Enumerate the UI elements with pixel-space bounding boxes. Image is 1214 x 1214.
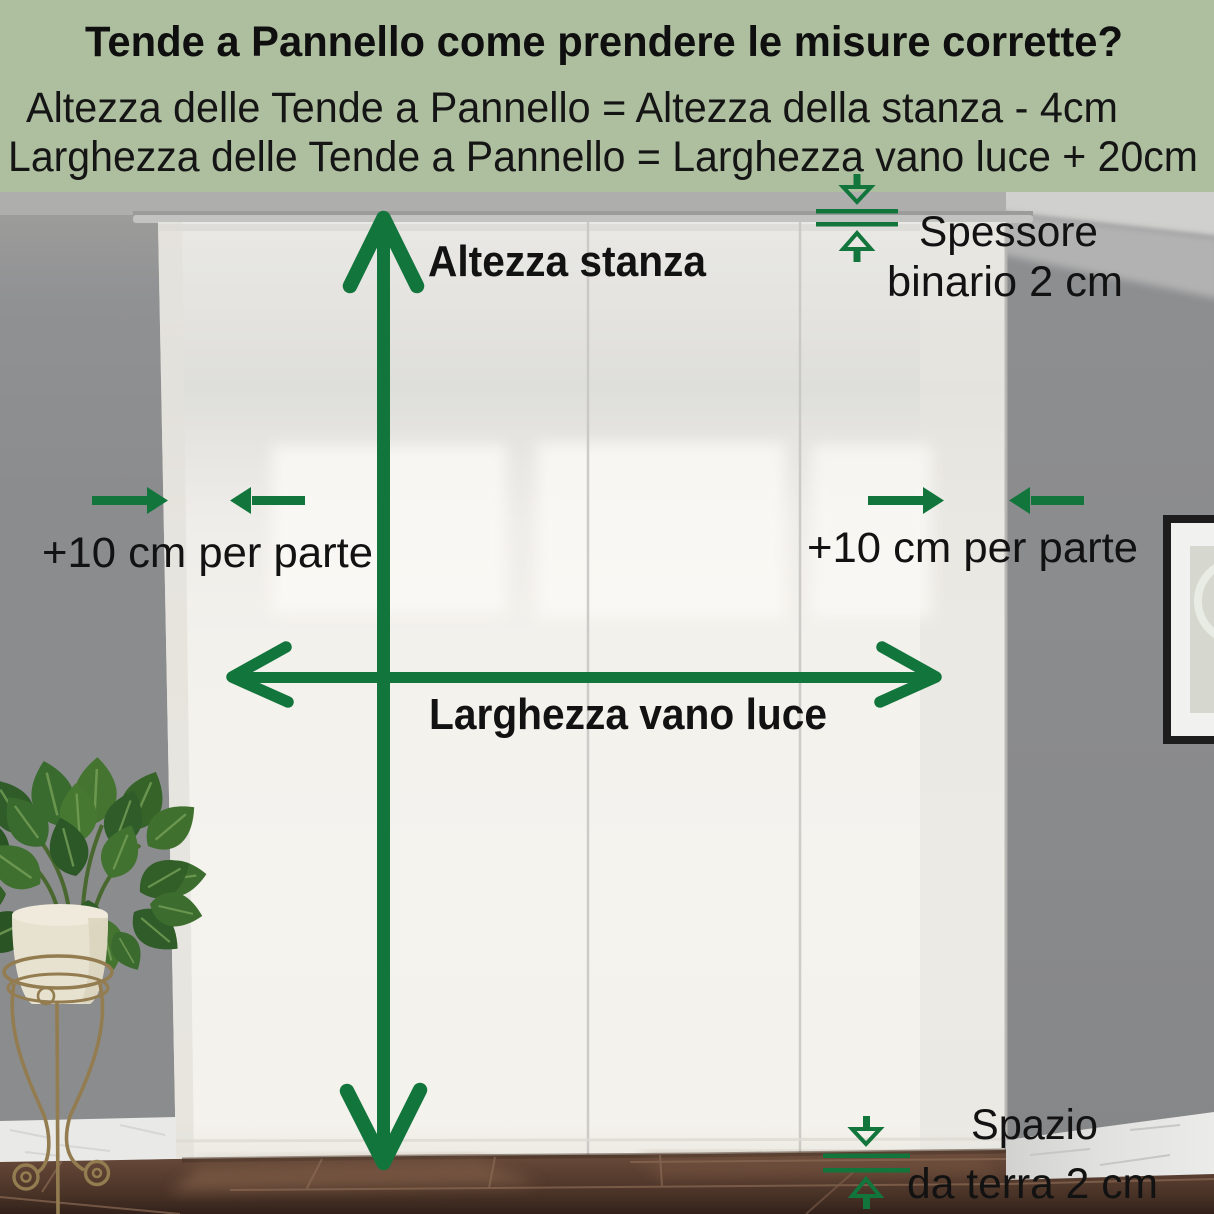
- svg-text:Altezza delle Tende a Pannello: Altezza delle Tende a Pannello = Altezza…: [26, 84, 1118, 132]
- svg-text:Tende a Pannello come prendere: Tende a Pannello come prendere le misure…: [85, 18, 1123, 66]
- svg-text:Spessore: Spessore: [919, 208, 1098, 256]
- svg-text:Spazio: Spazio: [971, 1101, 1098, 1149]
- svg-text:+10 cm per parte: +10 cm per parte: [42, 529, 373, 577]
- svg-text:binario 2 cm: binario 2 cm: [887, 258, 1123, 306]
- svg-text:Altezza stanza: Altezza stanza: [428, 237, 706, 286]
- svg-text:+10 cm per parte: +10 cm per parte: [807, 524, 1138, 572]
- svg-text:Larghezza vano luce: Larghezza vano luce: [429, 690, 827, 739]
- svg-text:Larghezza delle Tende a Pannel: Larghezza delle Tende a Pannello = Largh…: [8, 133, 1198, 181]
- svg-text:da terra 2 cm: da terra 2 cm: [907, 1160, 1158, 1208]
